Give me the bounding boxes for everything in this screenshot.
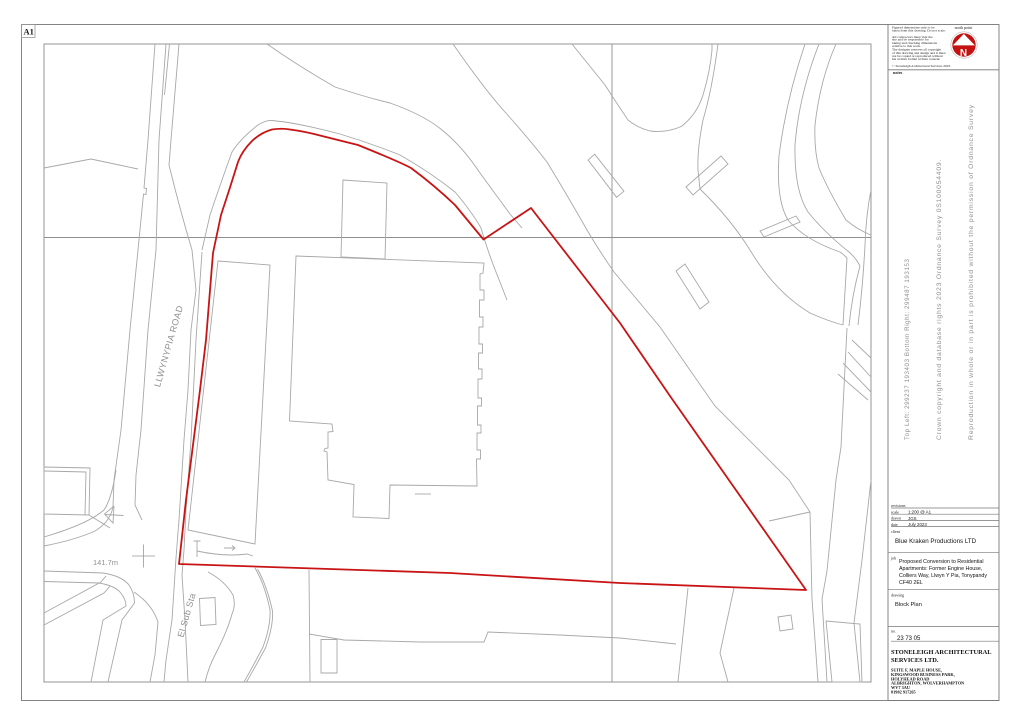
svg-text:job: job	[890, 556, 896, 561]
svg-text:north point: north point	[955, 25, 974, 30]
svg-text:STONELEIGH ARCHITECTURAL: STONELEIGH ARCHITECTURAL	[891, 649, 992, 656]
svg-text:N: N	[960, 48, 967, 59]
svg-text:Blue Kraken Productions LTD: Blue Kraken Productions LTD	[895, 538, 977, 545]
svg-text:scale: scale	[891, 509, 899, 514]
svg-text:notes: notes	[893, 70, 903, 75]
svg-text:client: client	[891, 529, 901, 534]
svg-text:El Sub Sta: El Sub Sta	[176, 592, 198, 639]
svg-text:1:200 @ A1: 1:200 @ A1	[908, 510, 932, 515]
svg-text:Top Left: 299237 193403 Bottom: Top Left: 299237 193403 Bottom Right: 29…	[904, 259, 911, 440]
svg-text:his written formal written con: his written formal written consent.	[892, 57, 940, 61]
svg-text:drawing: drawing	[891, 592, 904, 597]
svg-text:taken from this drawing. Do no: taken from this drawing. Do not scale.	[892, 28, 946, 32]
svg-text:Apartments: Former Engine Hous: Apartments: Former Engine House,	[899, 566, 982, 572]
svg-text:no.: no.	[891, 629, 896, 634]
svg-text:141.7m: 141.7m	[93, 558, 118, 567]
svg-text:date: date	[891, 522, 898, 527]
svg-text:Proposed Conversion to Residen: Proposed Conversion to Residential	[899, 559, 984, 565]
svg-text:Block Plan: Block Plan	[895, 602, 922, 608]
svg-text:CF40 2EL: CF40 2EL	[899, 580, 923, 586]
svg-text:© Stoneleigh Architectural Ser: © Stoneleigh Architectural Services 2023	[892, 63, 951, 68]
svg-text:revisions: revisions	[891, 503, 906, 508]
svg-text:01902 917265: 01902 917265	[891, 690, 916, 695]
svg-text:drawn: drawn	[891, 516, 901, 521]
svg-text:Reproduction in whole or in pa: Reproduction in whole or in part is proh…	[968, 104, 975, 440]
svg-text:LLWYNYPIA ROAD: LLWYNYPIA ROAD	[152, 304, 185, 388]
svg-text:SERVICES LTD.: SERVICES LTD.	[891, 657, 939, 664]
svg-text:Colliers Way, Llwyn Y Pia, Ton: Colliers Way, Llwyn Y Pia, Tonypandy	[899, 573, 987, 579]
svg-text:JGS: JGS	[908, 516, 917, 521]
svg-text:Crown copyright and database r: Crown copyright and database rights 2023…	[936, 159, 943, 440]
svg-text:A1: A1	[24, 27, 34, 37]
svg-text:July 2023: July 2023	[908, 522, 927, 527]
svg-text:23 73 05: 23 73 05	[897, 636, 921, 642]
